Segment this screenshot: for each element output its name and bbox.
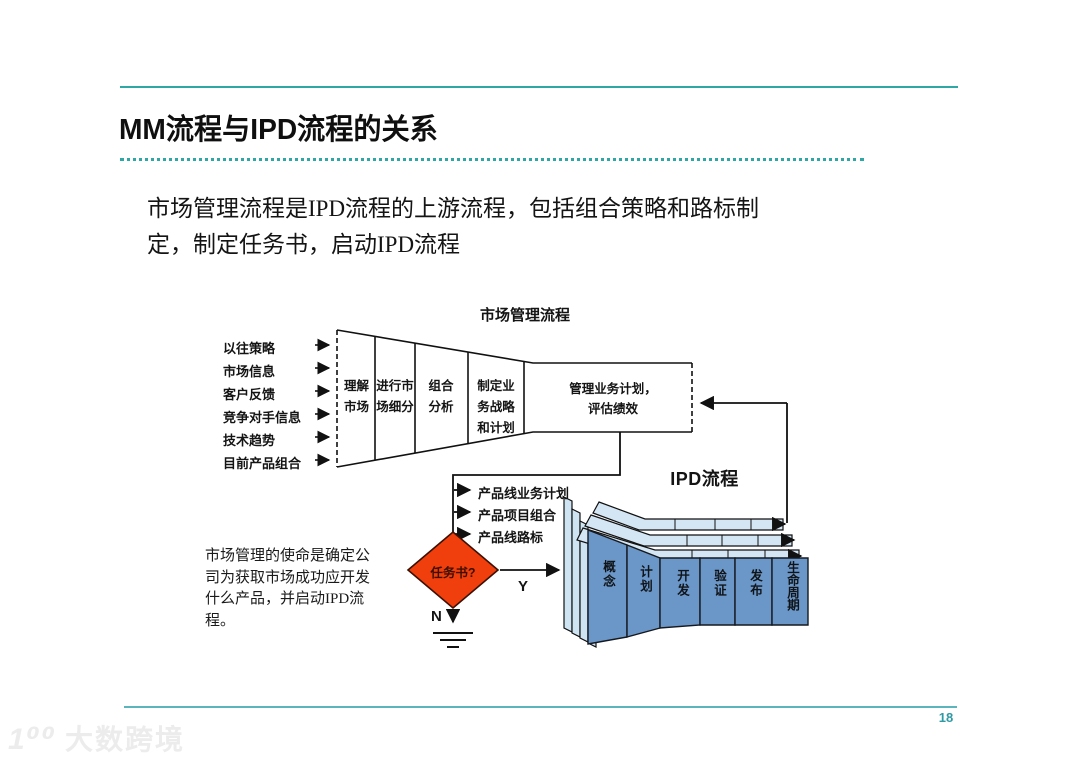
manage-box-label: 管理业务计划， 评估绩效 xyxy=(536,379,690,419)
ipd-phase: 验证 xyxy=(710,569,729,598)
ipd-phase: 计划 xyxy=(636,565,655,594)
slide-title: MM流程与IPD流程的关系 xyxy=(119,106,438,148)
ipd-phase: 发布 xyxy=(746,569,765,598)
watermark-logo: 1⁰⁰ xyxy=(8,723,57,756)
input-label: 市场信息 xyxy=(223,361,335,380)
input-label: 以往策略 xyxy=(223,338,335,357)
funnel-stage: 组合分析 xyxy=(424,376,458,418)
slide: MM流程与IPD流程的关系 市场管理流程是IPD流程的上游流程，包括组合策略和路… xyxy=(0,0,1080,763)
title-dotted-underline xyxy=(120,158,864,161)
output-label: 产品线业务计划 xyxy=(478,483,569,502)
input-label: 竞争对手信息 xyxy=(223,407,335,426)
footer-line xyxy=(124,706,957,708)
funnel-title: 市场管理流程 xyxy=(457,304,593,325)
output-label: 产品项目组合 xyxy=(478,505,556,524)
input-label: 客户反馈 xyxy=(223,384,335,403)
funnel-stage: 理解市场 xyxy=(338,376,375,418)
no-label: N xyxy=(431,608,442,625)
ipd-phase: 生命周期 xyxy=(783,561,802,611)
output-label: 产品线路标 xyxy=(478,527,543,546)
decision-label: 任务书? xyxy=(408,562,498,581)
page-number: 18 xyxy=(928,710,964,725)
feedback-loop xyxy=(701,403,787,523)
intro-paragraph: 市场管理流程是IPD流程的上游流程，包括组合策略和路标制 定，制定任务书，启动I… xyxy=(147,191,887,263)
top-divider-line xyxy=(120,86,958,88)
input-label: 技术趋势 xyxy=(223,430,335,449)
funnel-stage: 制定业务战略和计划 xyxy=(475,376,517,439)
ipd-phase: 开发 xyxy=(673,569,692,598)
ground-symbol xyxy=(433,633,473,647)
funnel-stage: 进行市场细分 xyxy=(376,376,414,418)
mission-caption: 市场管理的使命是确定公司为获取市场成功应开发什么产品，并启动IPD流程。 xyxy=(205,546,383,632)
yes-label: Y xyxy=(518,578,528,595)
ipd-process-title: IPD流程 xyxy=(647,465,762,491)
ipd-phase: 概念 xyxy=(599,560,618,589)
input-label: 目前产品组合 xyxy=(223,453,335,472)
watermark-text: 大数跨境 xyxy=(65,724,185,755)
ipd-phase-panels xyxy=(588,530,808,644)
watermark: 1⁰⁰大数跨境 xyxy=(8,718,185,758)
